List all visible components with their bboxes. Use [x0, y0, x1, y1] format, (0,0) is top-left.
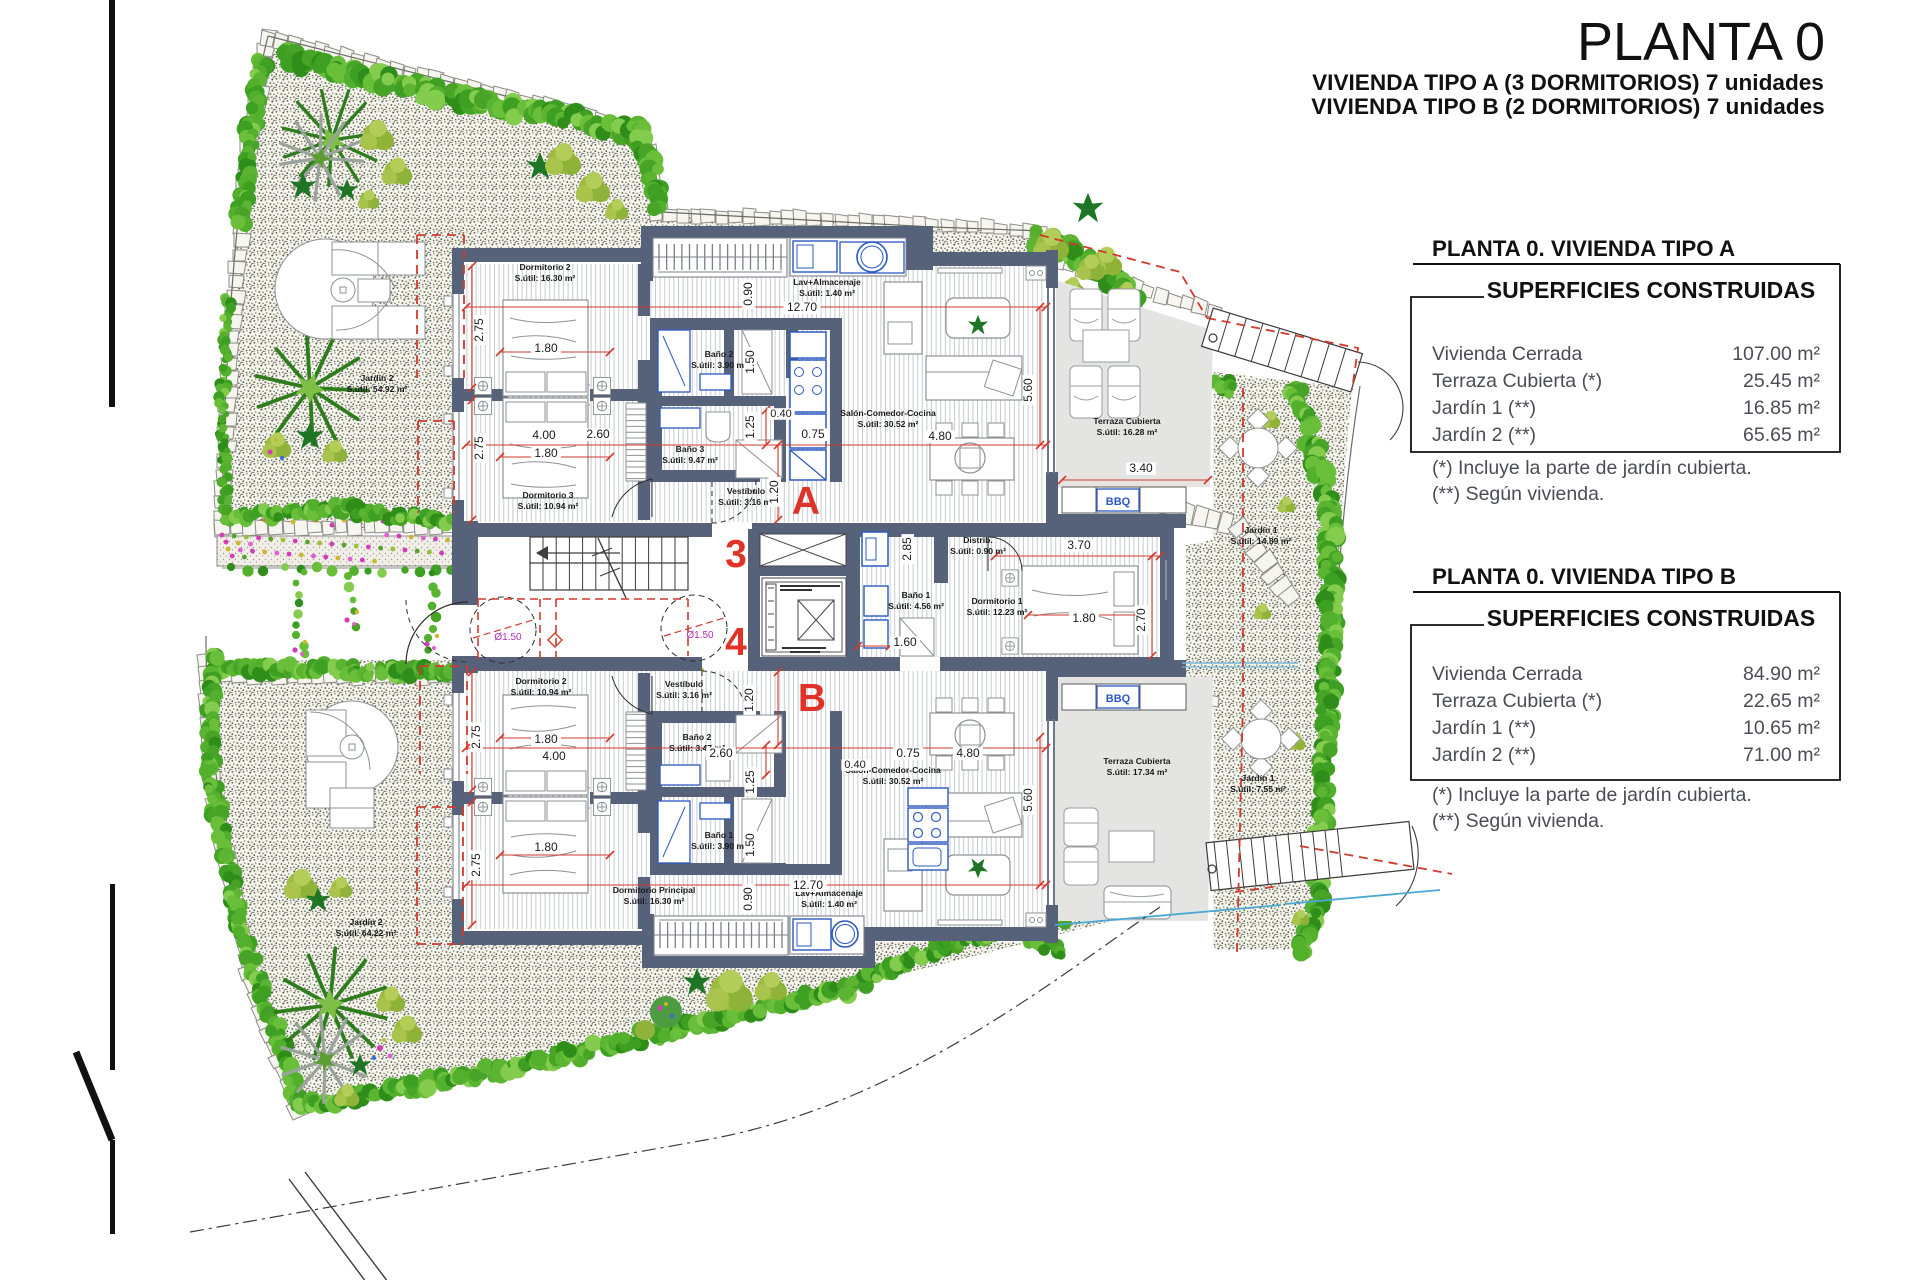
- svg-text:S.útil: 3.16 m²: S.útil: 3.16 m²: [656, 690, 712, 700]
- svg-text:S.útil: 7.55 m²: S.útil: 7.55 m²: [1230, 784, 1286, 794]
- svg-text:VIVIENDA TIPO B (2 DORMITORIOS: VIVIENDA TIPO B (2 DORMITORIOS) 7 unidad…: [1311, 94, 1824, 119]
- svg-text:SUPERFICIES CONSTRUIDAS: SUPERFICIES CONSTRUIDAS: [1487, 605, 1815, 631]
- svg-text:Terraza Cubierta: Terraza Cubierta: [1103, 756, 1170, 766]
- svg-text:Jardín 1: Jardín 1: [1242, 773, 1275, 783]
- svg-text:2.60: 2.60: [586, 427, 610, 441]
- svg-text:3: 3: [725, 533, 747, 576]
- svg-text:5.60: 5.60: [1021, 378, 1035, 402]
- svg-text:5.60: 5.60: [1021, 788, 1035, 812]
- svg-text:Baño 2: Baño 2: [683, 732, 712, 742]
- svg-text:Terraza Cubierta (*): Terraza Cubierta (*): [1432, 370, 1602, 392]
- svg-text:Vivienda Cerrada: Vivienda Cerrada: [1432, 663, 1582, 685]
- svg-text:16.85 m²: 16.85 m²: [1743, 397, 1820, 419]
- svg-text:Baño 2: Baño 2: [705, 349, 734, 359]
- svg-text:2.75: 2.75: [472, 318, 486, 342]
- svg-text:S.útil: 1.40 m²: S.útil: 1.40 m²: [801, 899, 857, 909]
- svg-text:A: A: [792, 480, 820, 523]
- svg-text:Vestíbulo: Vestíbulo: [727, 486, 765, 496]
- svg-text:71.00 m²: 71.00 m²: [1743, 744, 1820, 766]
- svg-text:S.útil: 3.16 m²: S.útil: 3.16 m²: [718, 497, 774, 507]
- svg-text:Vivienda Cerrada: Vivienda Cerrada: [1432, 343, 1582, 365]
- svg-text:Terraza Cubierta (*): Terraza Cubierta (*): [1432, 690, 1602, 712]
- svg-text:3.70: 3.70: [1067, 538, 1091, 552]
- svg-text:VIVIENDA TIPO A (3 DORMITORIOS: VIVIENDA TIPO A (3 DORMITORIOS) 7 unidad…: [1312, 70, 1824, 95]
- svg-text:Dormitorio 2: Dormitorio 2: [519, 262, 570, 272]
- svg-text:S.útil: 16.28 m²: S.útil: 16.28 m²: [1097, 427, 1158, 437]
- svg-text:Jardín 1: Jardín 1: [1245, 525, 1278, 535]
- svg-text:3.40: 3.40: [1129, 461, 1153, 475]
- svg-text:12.70: 12.70: [793, 878, 823, 892]
- svg-text:Jardín 2: Jardín 2: [361, 373, 394, 383]
- svg-text:Salón-Comedor-Cocina: Salón-Comedor-Cocina: [840, 408, 936, 418]
- svg-text:1.25: 1.25: [743, 415, 757, 439]
- svg-text:1.50: 1.50: [743, 350, 757, 374]
- svg-text:0.90: 0.90: [741, 887, 755, 911]
- svg-text:2.75: 2.75: [472, 436, 486, 460]
- svg-text:PLANTA 0. VIVIENDA TIPO B: PLANTA 0. VIVIENDA TIPO B: [1432, 564, 1736, 589]
- svg-text:2.75: 2.75: [469, 853, 483, 877]
- svg-text:Jardín 1 (**): Jardín 1 (**): [1432, 717, 1536, 739]
- svg-text:S.útil: 30.52 m²: S.útil: 30.52 m²: [858, 419, 919, 429]
- svg-text:Ø1.50: Ø1.50: [494, 632, 522, 643]
- svg-text:S.útil: 16.30 m²: S.útil: 16.30 m²: [624, 896, 685, 906]
- svg-text:107.00 m²: 107.00 m²: [1732, 343, 1820, 365]
- svg-text:Baño 1: Baño 1: [705, 830, 734, 840]
- svg-text:S.útil: 17.34 m²: S.útil: 17.34 m²: [1107, 767, 1168, 777]
- svg-text:1.50: 1.50: [743, 833, 757, 857]
- svg-text:1.80: 1.80: [1072, 611, 1096, 625]
- svg-text:PLANTA 0: PLANTA 0: [1577, 12, 1825, 72]
- svg-text:S.útil: 16.30 m²: S.útil: 16.30 m²: [515, 273, 576, 283]
- svg-text:Lav+Almacenaje: Lav+Almacenaje: [793, 277, 861, 287]
- svg-text:S.útil: 0.90 m²: S.útil: 0.90 m²: [950, 546, 1006, 556]
- svg-text:S.útil: 3.90 m²: S.útil: 3.90 m²: [691, 841, 747, 851]
- svg-text:Dormitorio Principal: Dormitorio Principal: [613, 885, 696, 895]
- svg-text:2.85: 2.85: [900, 537, 914, 561]
- svg-text:4: 4: [725, 621, 747, 664]
- svg-text:S.útil: 30.52 m²: S.útil: 30.52 m²: [863, 776, 924, 786]
- svg-text:1.25: 1.25: [743, 770, 757, 794]
- svg-text:S.útil: 10.94 m²: S.útil: 10.94 m²: [511, 687, 572, 697]
- svg-text:(*) Incluye la parte de jardí: (*) Incluye la parte de jardín cubierta.: [1432, 457, 1752, 479]
- svg-text:25.45 m²: 25.45 m²: [1743, 370, 1820, 392]
- svg-text:1.20: 1.20: [742, 688, 756, 712]
- svg-text:S.útil: 9.47 m²: S.útil: 9.47 m²: [662, 455, 718, 465]
- svg-text:2.75: 2.75: [469, 725, 483, 749]
- svg-text:0.75: 0.75: [896, 746, 920, 760]
- svg-text:Jardín 1 (**): Jardín 1 (**): [1432, 397, 1536, 419]
- svg-text:Jardín 2 (**): Jardín 2 (**): [1432, 744, 1536, 766]
- svg-text:1.60: 1.60: [893, 635, 917, 649]
- svg-text:2.60: 2.60: [709, 746, 733, 760]
- svg-text:Terraza Cubierta: Terraza Cubierta: [1093, 416, 1160, 426]
- svg-text:4.80: 4.80: [956, 746, 980, 760]
- svg-text:Baño 1: Baño 1: [902, 590, 931, 600]
- svg-text:1.80: 1.80: [534, 840, 558, 854]
- svg-text:Baño 3: Baño 3: [676, 444, 705, 454]
- svg-text:0.40: 0.40: [770, 408, 791, 420]
- svg-text:S.útil: 54.92 m²: S.útil: 54.92 m²: [347, 384, 408, 394]
- svg-text:Dormitorio 2: Dormitorio 2: [515, 676, 566, 686]
- svg-text:4.00: 4.00: [532, 428, 556, 442]
- svg-text:84.90 m²: 84.90 m²: [1743, 663, 1820, 685]
- svg-text:2.70: 2.70: [1134, 608, 1148, 632]
- svg-text:(**) Según vivienda.: (**) Según vivienda.: [1432, 483, 1604, 505]
- svg-text:Ø1.50: Ø1.50: [686, 630, 714, 641]
- svg-text:1.80: 1.80: [534, 732, 558, 746]
- svg-text:S.útil: 1.40 m²: S.útil: 1.40 m²: [799, 288, 855, 298]
- svg-text:BBQ: BBQ: [1106, 496, 1131, 508]
- svg-text:Dormitorio 3: Dormitorio 3: [522, 490, 573, 500]
- svg-text:PLANTA 0. VIVIENDA TIPO A: PLANTA 0. VIVIENDA TIPO A: [1432, 236, 1735, 261]
- svg-text:0.40: 0.40: [844, 759, 865, 771]
- svg-text:4.80: 4.80: [928, 429, 952, 443]
- svg-text:1.20: 1.20: [767, 480, 781, 504]
- svg-text:(**) Según vivienda.: (**) Según vivienda.: [1432, 810, 1604, 832]
- svg-text:1.80: 1.80: [534, 341, 558, 355]
- svg-text:S.útil: 3.90 m²: S.útil: 3.90 m²: [691, 360, 747, 370]
- svg-text:Vestíbulo: Vestíbulo: [665, 679, 703, 689]
- svg-text:S.útil: 4.56 m²: S.útil: 4.56 m²: [888, 601, 944, 611]
- svg-text:Distrib.: Distrib.: [963, 535, 993, 545]
- svg-text:Dormitorio 1: Dormitorio 1: [971, 596, 1022, 606]
- svg-text:S.útil: 64.22 m²: S.útil: 64.22 m²: [336, 928, 397, 938]
- svg-text:S.útil: 12.23 m²: S.útil: 12.23 m²: [967, 607, 1028, 617]
- svg-text:S.útil: 10.94 m²: S.útil: 10.94 m²: [518, 501, 579, 511]
- svg-text:4.00: 4.00: [542, 749, 566, 763]
- svg-text:SUPERFICIES CONSTRUIDAS: SUPERFICIES CONSTRUIDAS: [1487, 277, 1815, 303]
- svg-text:0.90: 0.90: [741, 282, 755, 306]
- svg-text:S.útil: 14.89 m²: S.útil: 14.89 m²: [1231, 536, 1292, 546]
- svg-text:B: B: [798, 677, 826, 720]
- svg-text:BBQ: BBQ: [1106, 693, 1131, 705]
- svg-text:65.65 m²: 65.65 m²: [1743, 424, 1820, 446]
- svg-text:0.75: 0.75: [801, 427, 825, 441]
- svg-text:10.65 m²: 10.65 m²: [1743, 717, 1820, 739]
- svg-text:Jardín 2: Jardín 2: [350, 917, 383, 927]
- svg-text:22.65 m²: 22.65 m²: [1743, 690, 1820, 712]
- svg-text:12.70: 12.70: [787, 300, 817, 314]
- svg-text:1.80: 1.80: [534, 446, 558, 460]
- svg-text:Jardín 2 (**): Jardín 2 (**): [1432, 424, 1536, 446]
- svg-text:(*) Incluye la parte de jardí: (*) Incluye la parte de jardín cubierta.: [1432, 784, 1752, 806]
